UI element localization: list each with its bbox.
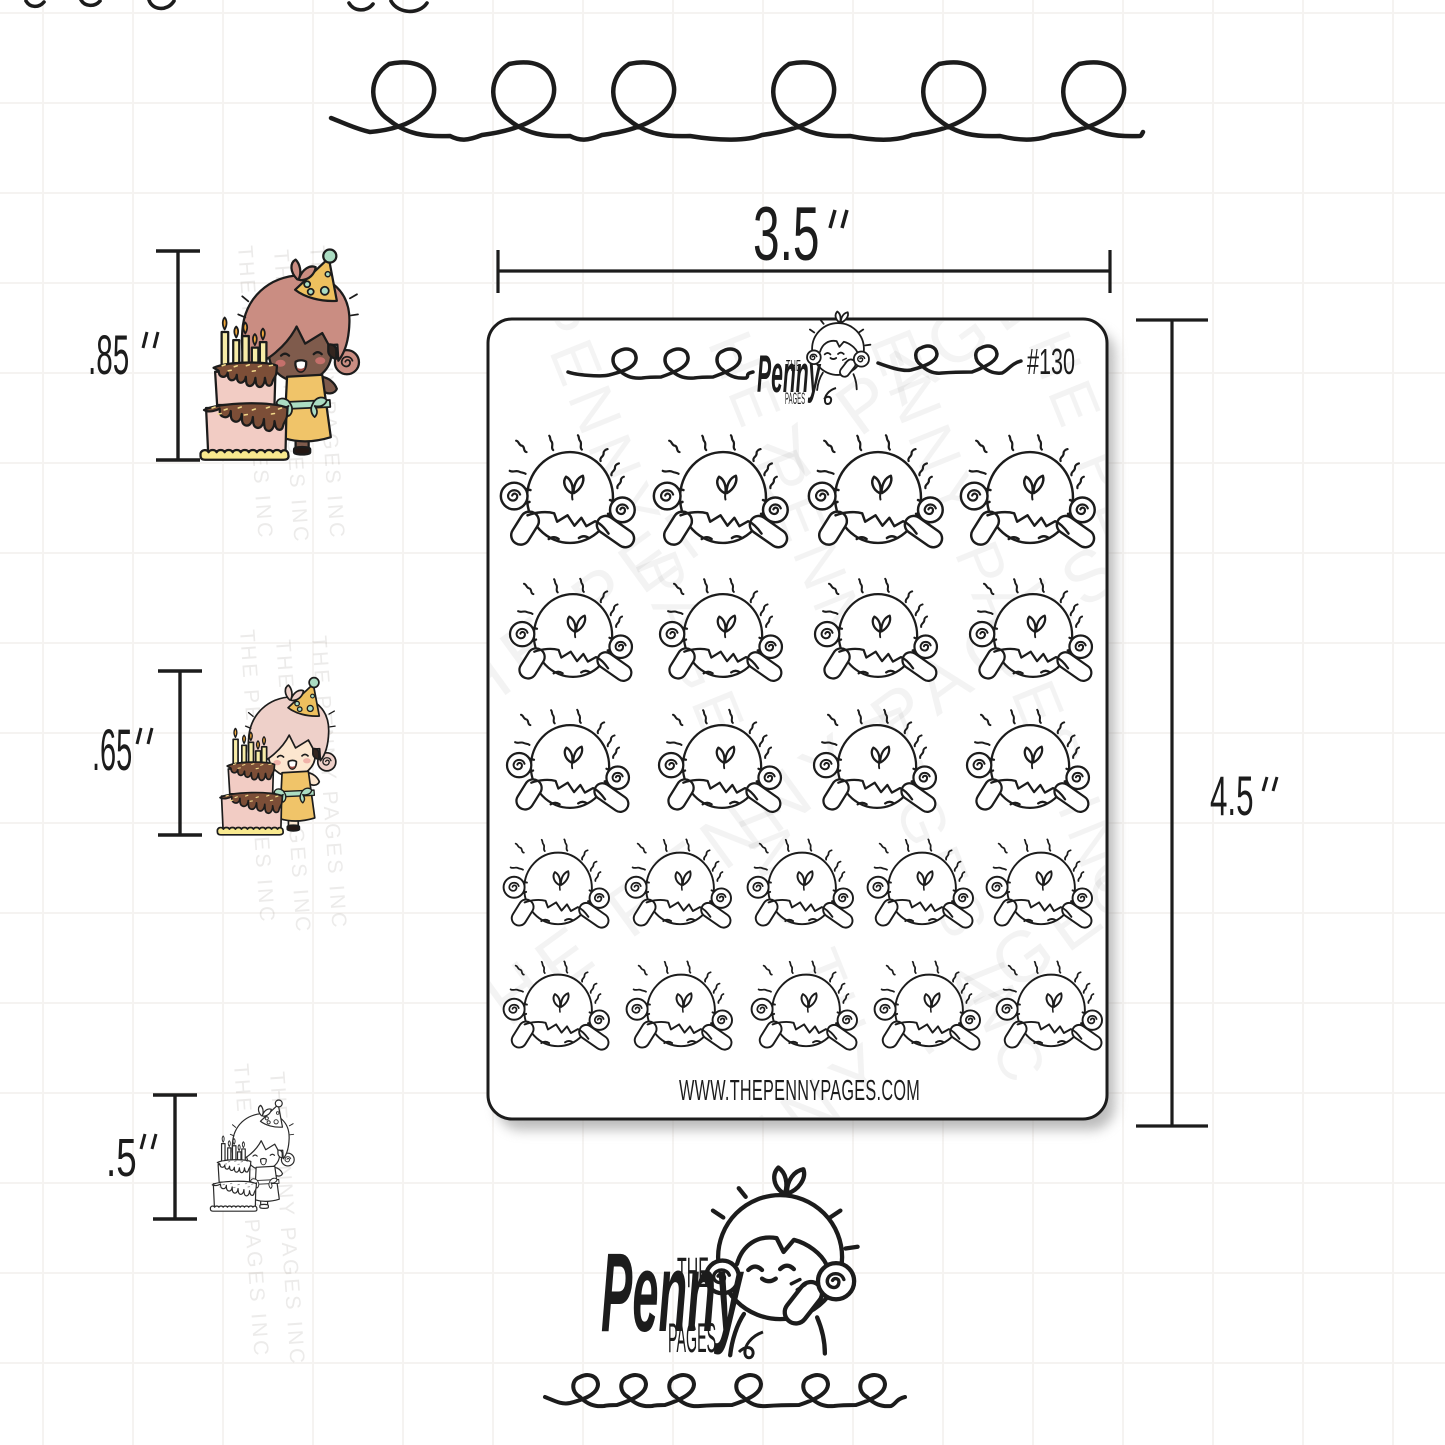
svg-text:.85: .85 xyxy=(88,324,129,386)
svg-text:WWW.THEPENNYPAGES.COM: WWW.THEPENNYPAGES.COM xyxy=(679,1074,920,1106)
svg-text:.5: .5 xyxy=(106,1127,137,1188)
svg-text:3.5: 3.5 xyxy=(753,193,820,277)
svg-text:PAGES: PAGES xyxy=(668,1315,716,1362)
svg-text:.65: .65 xyxy=(92,717,132,783)
svg-text:4.5: 4.5 xyxy=(1210,764,1254,827)
svg-text:#130: #130 xyxy=(1027,342,1075,382)
svg-text:PAGES: PAGES xyxy=(785,389,805,408)
